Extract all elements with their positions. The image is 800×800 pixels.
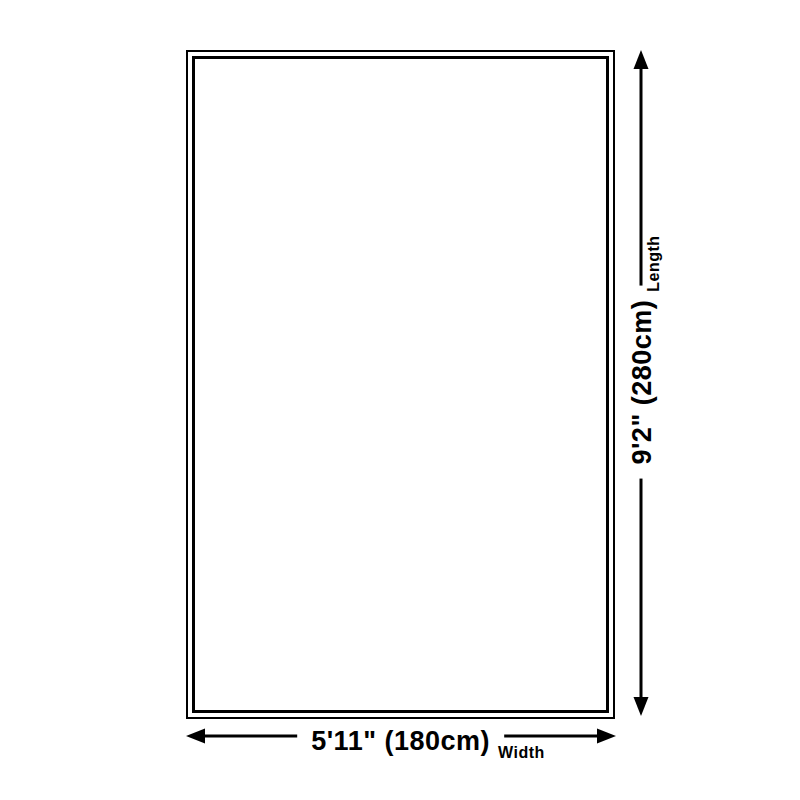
rug-inner-border [192, 56, 609, 713]
length-value: 9'2" (280cm) [622, 286, 662, 479]
length-caption: Length [645, 235, 663, 291]
width-value: 5'11" (180cm) [297, 721, 504, 761]
rug-size-diagram: 9'2" (280cm)Length 5'11" (180cm)Width [0, 0, 800, 800]
width-label: 5'11" (180cm)Width [297, 721, 545, 762]
rug-outline [186, 50, 615, 719]
length-label: 9'2" (280cm)Length [622, 235, 663, 478]
width-caption: Width [498, 744, 545, 762]
